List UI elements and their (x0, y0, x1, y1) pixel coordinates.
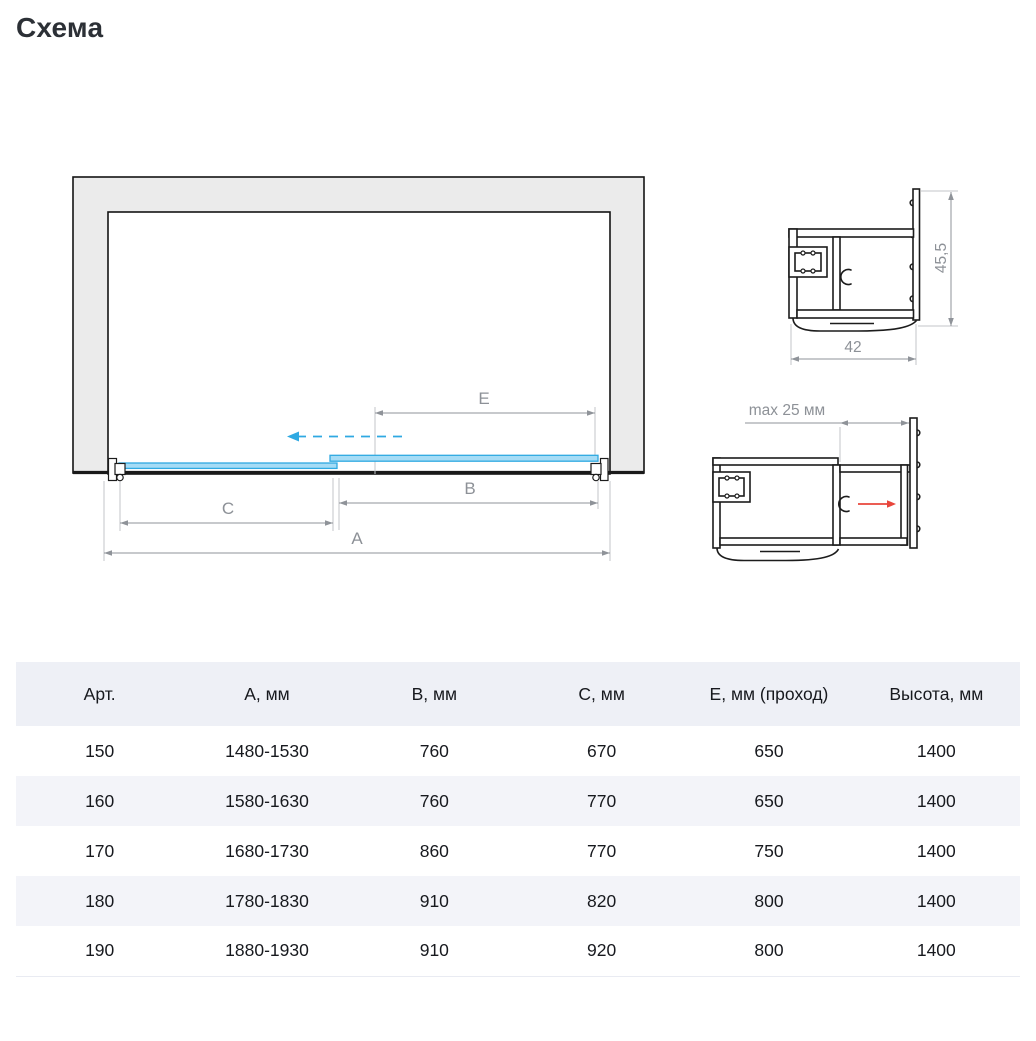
table-row: 180 1780-1830 910 820 800 1400 (16, 876, 1020, 926)
table-cell: 770 (518, 776, 685, 826)
table-cell: 1580-1630 (183, 776, 350, 826)
col-header-c: С, мм (518, 662, 685, 726)
table-row: 150 1480-1530 760 670 650 1400 (16, 726, 1020, 776)
dimension-c: С (120, 499, 333, 526)
dim-c-label: С (222, 499, 234, 518)
table-cell: 920 (518, 926, 685, 976)
table-cell: 150 (16, 726, 183, 776)
plan-view-drawing: Е В С А (73, 177, 644, 561)
profile-width-label: 42 (844, 339, 861, 356)
table-cell: 1400 (853, 776, 1020, 826)
door-direction-arrow-icon (858, 500, 896, 508)
col-header-a: А, мм (183, 662, 350, 726)
table-cell: 1480-1530 (183, 726, 350, 776)
size-table: Арт. А, мм В, мм С, мм Е, мм (проход) Вы… (16, 662, 1020, 977)
table-cell: 670 (518, 726, 685, 776)
table-cell: 760 (351, 726, 518, 776)
table-cell: 800 (685, 926, 852, 976)
table-cell: 1400 (853, 926, 1020, 976)
table-cell: 860 (351, 826, 518, 876)
table-cell: 800 (685, 876, 852, 926)
table-cell: 760 (351, 776, 518, 826)
table-cell: 1880-1930 (183, 926, 350, 976)
table-cell: 820 (518, 876, 685, 926)
table-cell: 170 (16, 826, 183, 876)
sliding-glass-panel (119, 463, 337, 468)
table-row: 190 1880-1930 910 920 800 1400 (16, 926, 1020, 976)
dim-a-label: А (351, 529, 363, 548)
room-interior (108, 212, 610, 474)
profile-top-body (789, 189, 920, 331)
table-cell: 1680-1730 (183, 826, 350, 876)
profile-top-drawing: 45,5 42 (789, 189, 958, 365)
profile-height-label: 45,5 (933, 243, 950, 273)
col-header-art: Арт. (16, 662, 183, 726)
table-cell: 650 (685, 726, 852, 776)
table-cell: 770 (518, 826, 685, 876)
table-cell: 1400 (853, 826, 1020, 876)
table-cell: 1400 (853, 726, 1020, 776)
screw-boss-icon (841, 270, 851, 285)
table-row: 160 1580-1630 760 770 650 1400 (16, 776, 1020, 826)
profile-bottom-body (713, 418, 920, 561)
profile-bottom-drawing: max 25 мм (713, 402, 920, 561)
dim-e-label: Е (478, 389, 489, 408)
table-cell: 1400 (853, 876, 1020, 926)
scheme-diagram: Е В С А (0, 0, 1036, 620)
table-cell: 180 (16, 876, 183, 926)
max-gap-label: max 25 мм (749, 402, 825, 419)
table-row: 170 1680-1730 860 770 750 1400 (16, 826, 1020, 876)
table-cell: 1780-1830 (183, 876, 350, 926)
table-cell: 910 (351, 876, 518, 926)
table-cell: 160 (16, 776, 183, 826)
col-header-height: Высота, мм (853, 662, 1020, 726)
table-cell: 650 (685, 776, 852, 826)
dimension-max-gap: max 25 мм (745, 402, 909, 462)
table-cell: 910 (351, 926, 518, 976)
size-table-header: Арт. А, мм В, мм С, мм Е, мм (проход) Вы… (16, 662, 1020, 726)
table-cell: 750 (685, 826, 852, 876)
dimension-a: А (104, 529, 610, 556)
col-header-b: В, мм (351, 662, 518, 726)
dim-b-label: В (464, 479, 475, 498)
dimension-b: В (339, 479, 598, 506)
table-cell: 190 (16, 926, 183, 976)
col-header-e: Е, мм (проход) (685, 662, 852, 726)
dimension-height-45-5: 45,5 (918, 191, 958, 326)
fixed-glass-panel (330, 455, 598, 461)
